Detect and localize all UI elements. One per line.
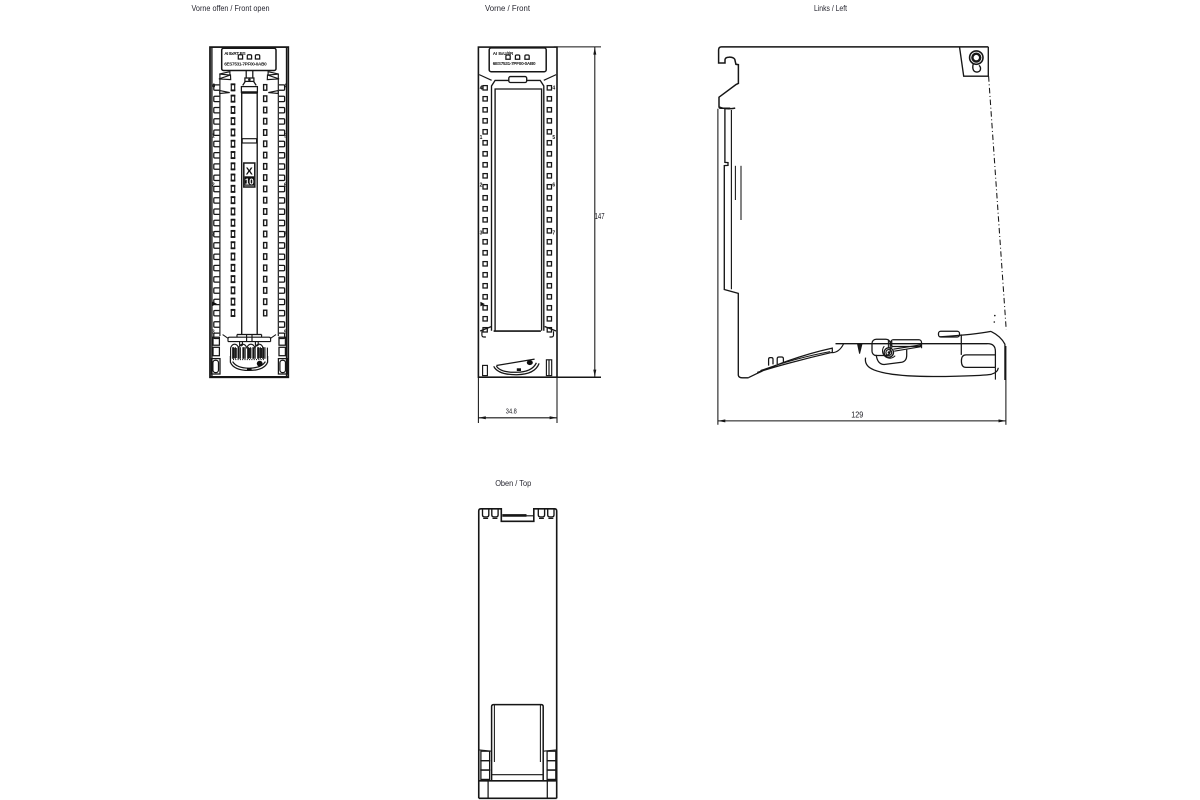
svg-text:6ES7531-7PF00-0AB0: 6ES7531-7PF00-0AB0 <box>493 61 536 66</box>
svg-text:7: 7 <box>284 232 287 238</box>
svg-text:3: 3 <box>212 232 215 238</box>
svg-text:5: 5 <box>552 135 555 141</box>
svg-text:40: 40 <box>480 85 484 91</box>
svg-text:2: 2 <box>212 183 215 189</box>
svg-text:3: 3 <box>212 330 215 336</box>
svg-text:5: 5 <box>284 134 287 140</box>
svg-text:3: 3 <box>480 230 483 236</box>
svg-text:Oben / Top: Oben / Top <box>495 478 531 488</box>
svg-text:1: 1 <box>480 135 483 141</box>
svg-text:4: 4 <box>552 85 555 91</box>
svg-text:1: 1 <box>212 134 215 140</box>
svg-text:129: 129 <box>851 410 863 419</box>
svg-text:9: 9 <box>284 330 287 336</box>
svg-text:10: 10 <box>245 177 254 186</box>
svg-text:Vorne offen / Front open: Vorne offen / Front open <box>192 3 270 13</box>
svg-text:34.8: 34.8 <box>506 406 517 415</box>
svg-text:7: 7 <box>552 230 555 236</box>
svg-text:6ES7531-7PF00-0AB0: 6ES7531-7PF00-0AB0 <box>224 61 267 66</box>
svg-text:40: 40 <box>212 84 216 90</box>
svg-text:6: 6 <box>552 182 555 188</box>
svg-text:4: 4 <box>284 84 287 90</box>
svg-text:Vorne / Front: Vorne / Front <box>485 3 531 13</box>
svg-text:2: 2 <box>480 182 483 188</box>
svg-text:147: 147 <box>595 212 605 221</box>
svg-text:AI 8xU/I/R: AI 8xU/I/R <box>493 51 514 56</box>
svg-text:6: 6 <box>284 183 287 189</box>
svg-text:X: X <box>246 166 253 178</box>
svg-text:Links / Left: Links / Left <box>814 3 847 13</box>
